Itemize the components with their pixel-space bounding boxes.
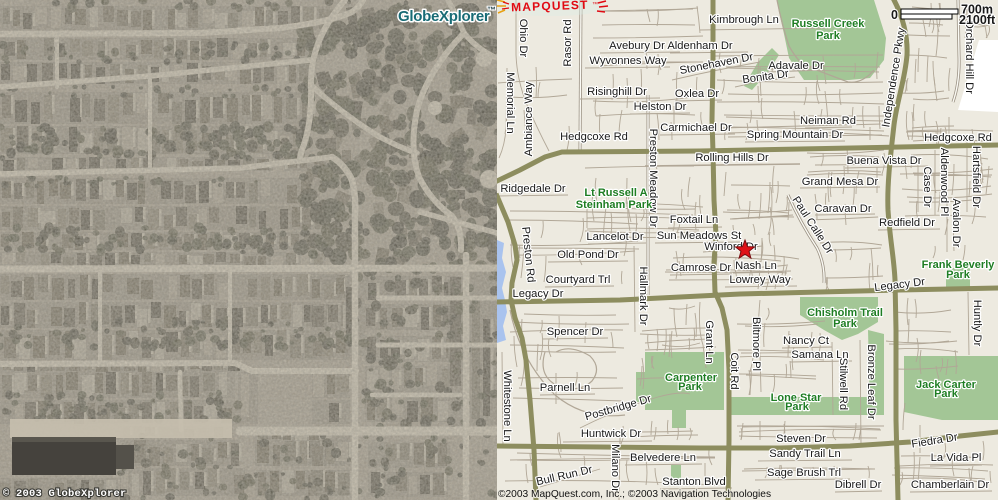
svg-text:Neiman Rd: Neiman Rd [800,115,856,127]
svg-text:Steinham Park: Steinham Park [576,199,653,211]
svg-text:Spring Mountain Dr: Spring Mountain Dr [747,129,844,141]
svg-text:Memorial Ln: Memorial Ln [504,72,516,134]
svg-text:™: ™ [592,1,598,8]
svg-text:Legacy Dr: Legacy Dr [513,288,564,300]
svg-text:Whitestone Ln: Whitestone Ln [501,370,513,442]
svg-text:Park: Park [785,401,810,413]
svg-text:Case Dr: Case Dr [921,166,933,207]
svg-text:La Vida Pl: La Vida Pl [931,452,982,464]
svg-text:Hallmark Dr: Hallmark Dr [637,266,649,325]
svg-text:2100ft: 2100ft [959,13,996,27]
svg-text:Nancy Ct: Nancy Ct [783,335,830,347]
svg-text:Helston Dr: Helston Dr [634,101,687,113]
svg-text:Steven Dr: Steven Dr [776,433,826,445]
svg-text:Chamberlain Dr: Chamberlain Dr [911,479,990,491]
svg-text:Biltmore Pl: Biltmore Pl [750,317,762,371]
svg-text:Belvedere Ln: Belvedere Ln [630,452,696,464]
svg-text:Russell Creek: Russell Creek [792,18,866,30]
svg-text:Park: Park [946,269,971,281]
svg-text:Carmichael Dr: Carmichael Dr [660,122,732,134]
svg-text:Milano Dr: Milano Dr [609,444,621,492]
svg-text:Wyvonnes Way: Wyvonnes Way [589,55,667,67]
svg-text:Aldenham Dr: Aldenham Dr [667,40,733,52]
svg-text:Grant Ln: Grant Ln [703,320,715,364]
svg-text:Dibrell Dr: Dibrell Dr [835,479,882,491]
svg-text:© 2003 GlobeXplorer: © 2003 GlobeXplorer [3,488,127,500]
svg-text:Aldenwood Pl: Aldenwood Pl [938,148,950,216]
svg-text:Oxlea Dr: Oxlea Dr [675,88,719,100]
svg-text:Park: Park [934,388,959,400]
svg-text:Camrose Dr: Camrose Dr [671,262,732,274]
svg-text:Stilwell Rd: Stilwell Rd [837,358,849,410]
svg-text:Buena Vista Dr: Buena Vista Dr [846,155,921,167]
svg-text:©2003 MapQuest.com, Inc.; ©200: ©2003 MapQuest.com, Inc.; ©2003 Navigati… [498,489,771,500]
svg-text:Redfield Dr: Redfield Dr [879,217,935,229]
svg-text:Lowrey Way: Lowrey Way [729,274,791,286]
svg-text:Sandy Trail Ln: Sandy Trail Ln [769,448,841,460]
svg-text:Courtyard Trl: Courtyard Trl [546,274,611,286]
svg-text:Hartsfield Dr: Hartsfield Dr [970,146,982,208]
svg-text:Rolling Hills Dr: Rolling Hills Dr [695,152,769,164]
svg-text:Huntwick Dr: Huntwick Dr [581,428,642,440]
svg-text:Parnell Ln: Parnell Ln [540,382,590,394]
svg-text:Lancelot Dr: Lancelot Dr [586,231,643,243]
svg-text:Huntly Dr: Huntly Dr [971,300,983,347]
svg-text:Lt Russell A: Lt Russell A [584,187,647,199]
svg-text:Avalon Dr: Avalon Dr [950,199,962,248]
svg-text:Park: Park [816,30,841,42]
svg-text:Avebury Dr: Avebury Dr [609,40,665,52]
svg-text:GlobeXplorer: GlobeXplorer [398,8,490,25]
svg-text:0: 0 [891,8,898,22]
svg-text:Orchard Hill Dr: Orchard Hill Dr [963,20,975,94]
svg-text:Hedgcoxe Rd: Hedgcoxe Rd [924,132,992,144]
svg-text:Spencer Dr: Spencer Dr [547,326,604,338]
svg-text:Caravan Dr: Caravan Dr [814,203,871,215]
svg-text:Ohio Dr: Ohio Dr [517,19,529,58]
svg-text:Risinghill Dr: Risinghill Dr [587,86,647,98]
svg-text:Park: Park [678,381,703,393]
svg-text:Coit Rd: Coit Rd [728,352,740,389]
svg-text:Hedgcoxe Rd: Hedgcoxe Rd [560,131,628,143]
svg-text:Foxtail Ln: Foxtail Ln [670,214,719,226]
svg-text:Stanton Blvd: Stanton Blvd [662,476,725,488]
svg-text:™: ™ [487,5,496,15]
svg-text:Preston Meadow Dr: Preston Meadow Dr [647,129,659,228]
svg-text:Kimbrough Ln: Kimbrough Ln [709,14,779,26]
svg-text:Nash Ln: Nash Ln [735,260,777,272]
svg-text:Ridgedale Dr: Ridgedale Dr [500,183,566,195]
svg-text:Rasor Rd: Rasor Rd [562,19,574,66]
svg-text:Old Pond Dr: Old Pond Dr [557,249,619,261]
svg-text:Bronze Leaf Dr: Bronze Leaf Dr [865,344,877,420]
svg-text:Sage Brush Trl: Sage Brush Trl [767,467,841,479]
svg-text:Grand Mesa Dr: Grand Mesa Dr [802,176,879,188]
svg-text:Ambiance Way: Ambiance Way [523,81,535,156]
svg-text:Park: Park [833,318,858,330]
